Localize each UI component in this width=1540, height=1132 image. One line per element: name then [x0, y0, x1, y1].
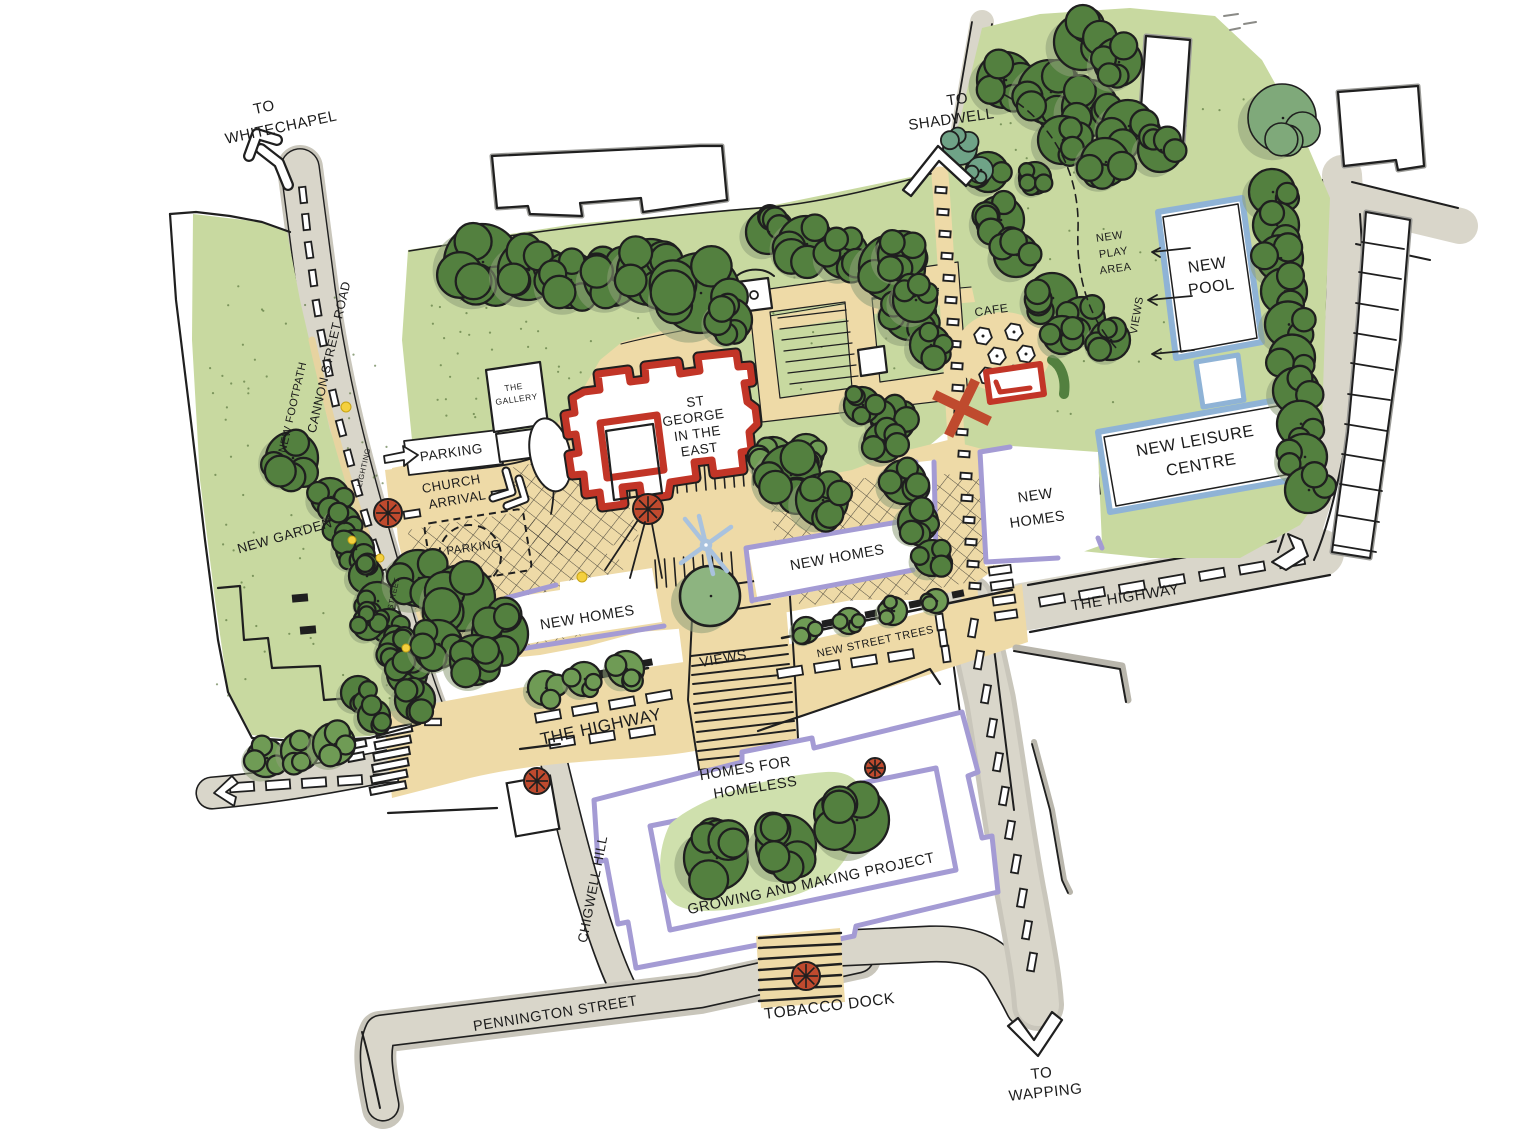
svg-text:TO: TO: [946, 90, 970, 110]
svg-text:TO: TO: [1030, 1064, 1053, 1083]
svg-text:ST: ST: [685, 393, 705, 410]
